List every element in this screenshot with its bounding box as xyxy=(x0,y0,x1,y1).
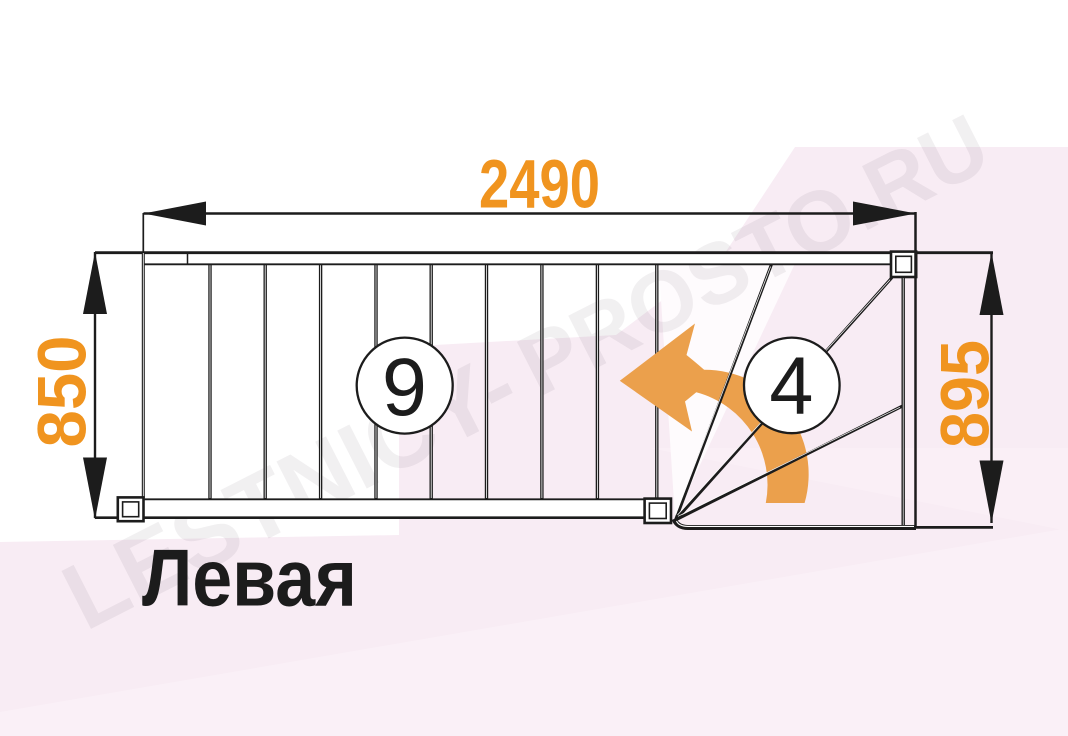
svg-text:9: 9 xyxy=(382,342,427,433)
svg-text:4: 4 xyxy=(769,341,813,432)
svg-text:Левая: Левая xyxy=(142,534,357,624)
svg-text:2490: 2490 xyxy=(479,145,600,222)
svg-text:895: 895 xyxy=(926,340,1003,448)
svg-text:850: 850 xyxy=(24,336,101,448)
